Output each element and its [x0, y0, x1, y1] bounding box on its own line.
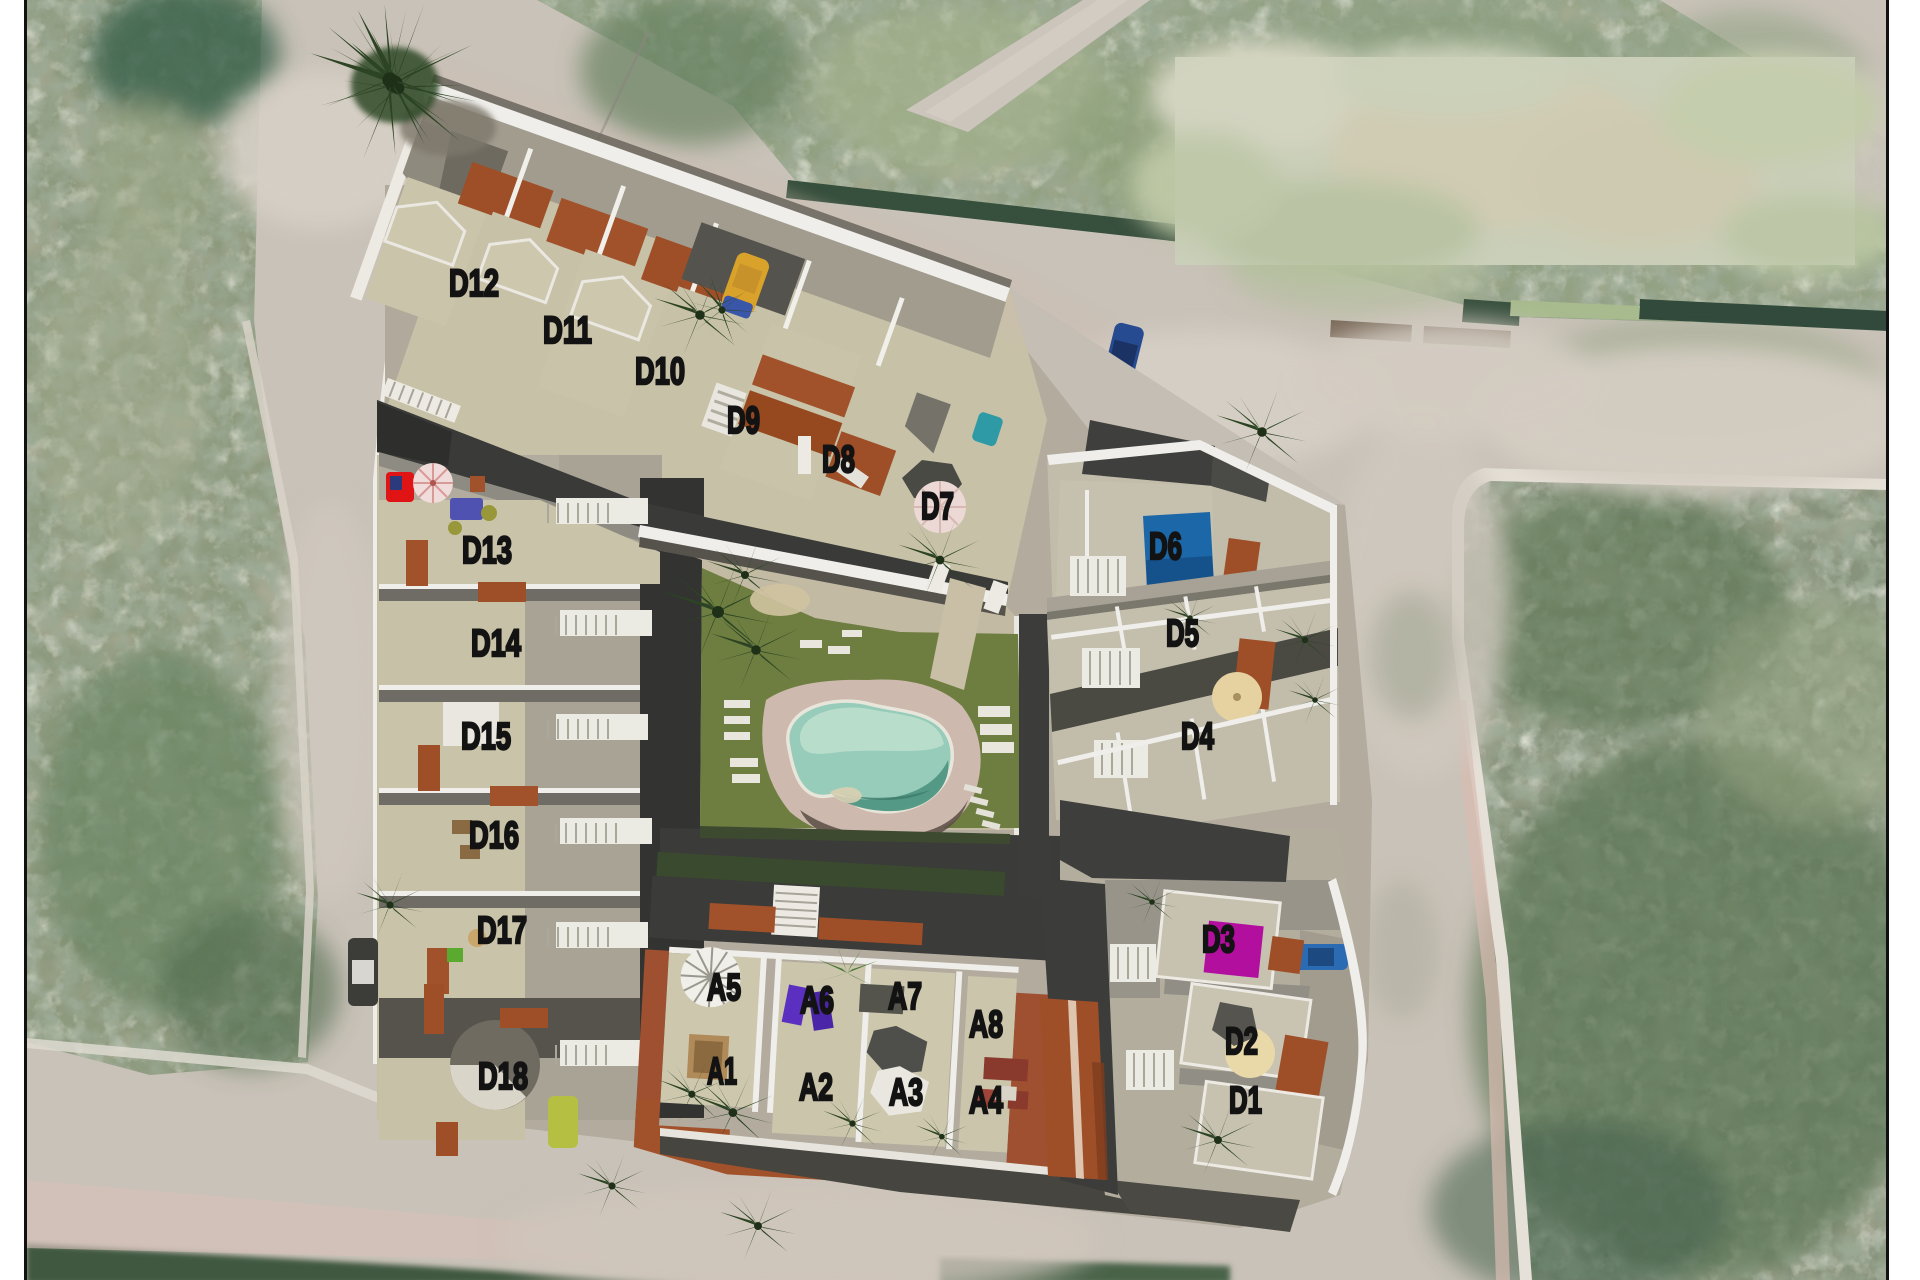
svg-text:D11: D11 [543, 310, 592, 352]
svg-text:D8: D8 [822, 439, 855, 481]
svg-text:A1: A1 [707, 1051, 737, 1093]
svg-text:D5: D5 [1166, 613, 1199, 655]
svg-text:D13: D13 [462, 530, 512, 572]
svg-text:D10: D10 [635, 351, 685, 393]
svg-text:A5: A5 [707, 967, 741, 1009]
svg-text:D2: D2 [1225, 1021, 1258, 1063]
svg-text:A8: A8 [969, 1004, 1003, 1046]
svg-text:A7: A7 [888, 976, 922, 1018]
svg-text:D12: D12 [449, 263, 499, 305]
svg-text:D14: D14 [471, 623, 521, 665]
svg-text:D16: D16 [469, 815, 519, 857]
svg-text:D1: D1 [1229, 1080, 1262, 1122]
svg-text:A4: A4 [969, 1080, 1003, 1122]
svg-text:D15: D15 [461, 716, 511, 758]
svg-text:A6: A6 [800, 980, 834, 1022]
svg-text:D3: D3 [1202, 919, 1235, 961]
svg-text:D18: D18 [478, 1056, 528, 1098]
svg-text:D7: D7 [921, 486, 954, 528]
svg-text:D4: D4 [1181, 716, 1214, 758]
svg-text:D6: D6 [1149, 526, 1182, 568]
svg-text:D17: D17 [477, 910, 527, 952]
svg-text:A3: A3 [889, 1072, 923, 1114]
svg-text:D9: D9 [727, 400, 760, 442]
svg-text:A2: A2 [799, 1067, 833, 1109]
